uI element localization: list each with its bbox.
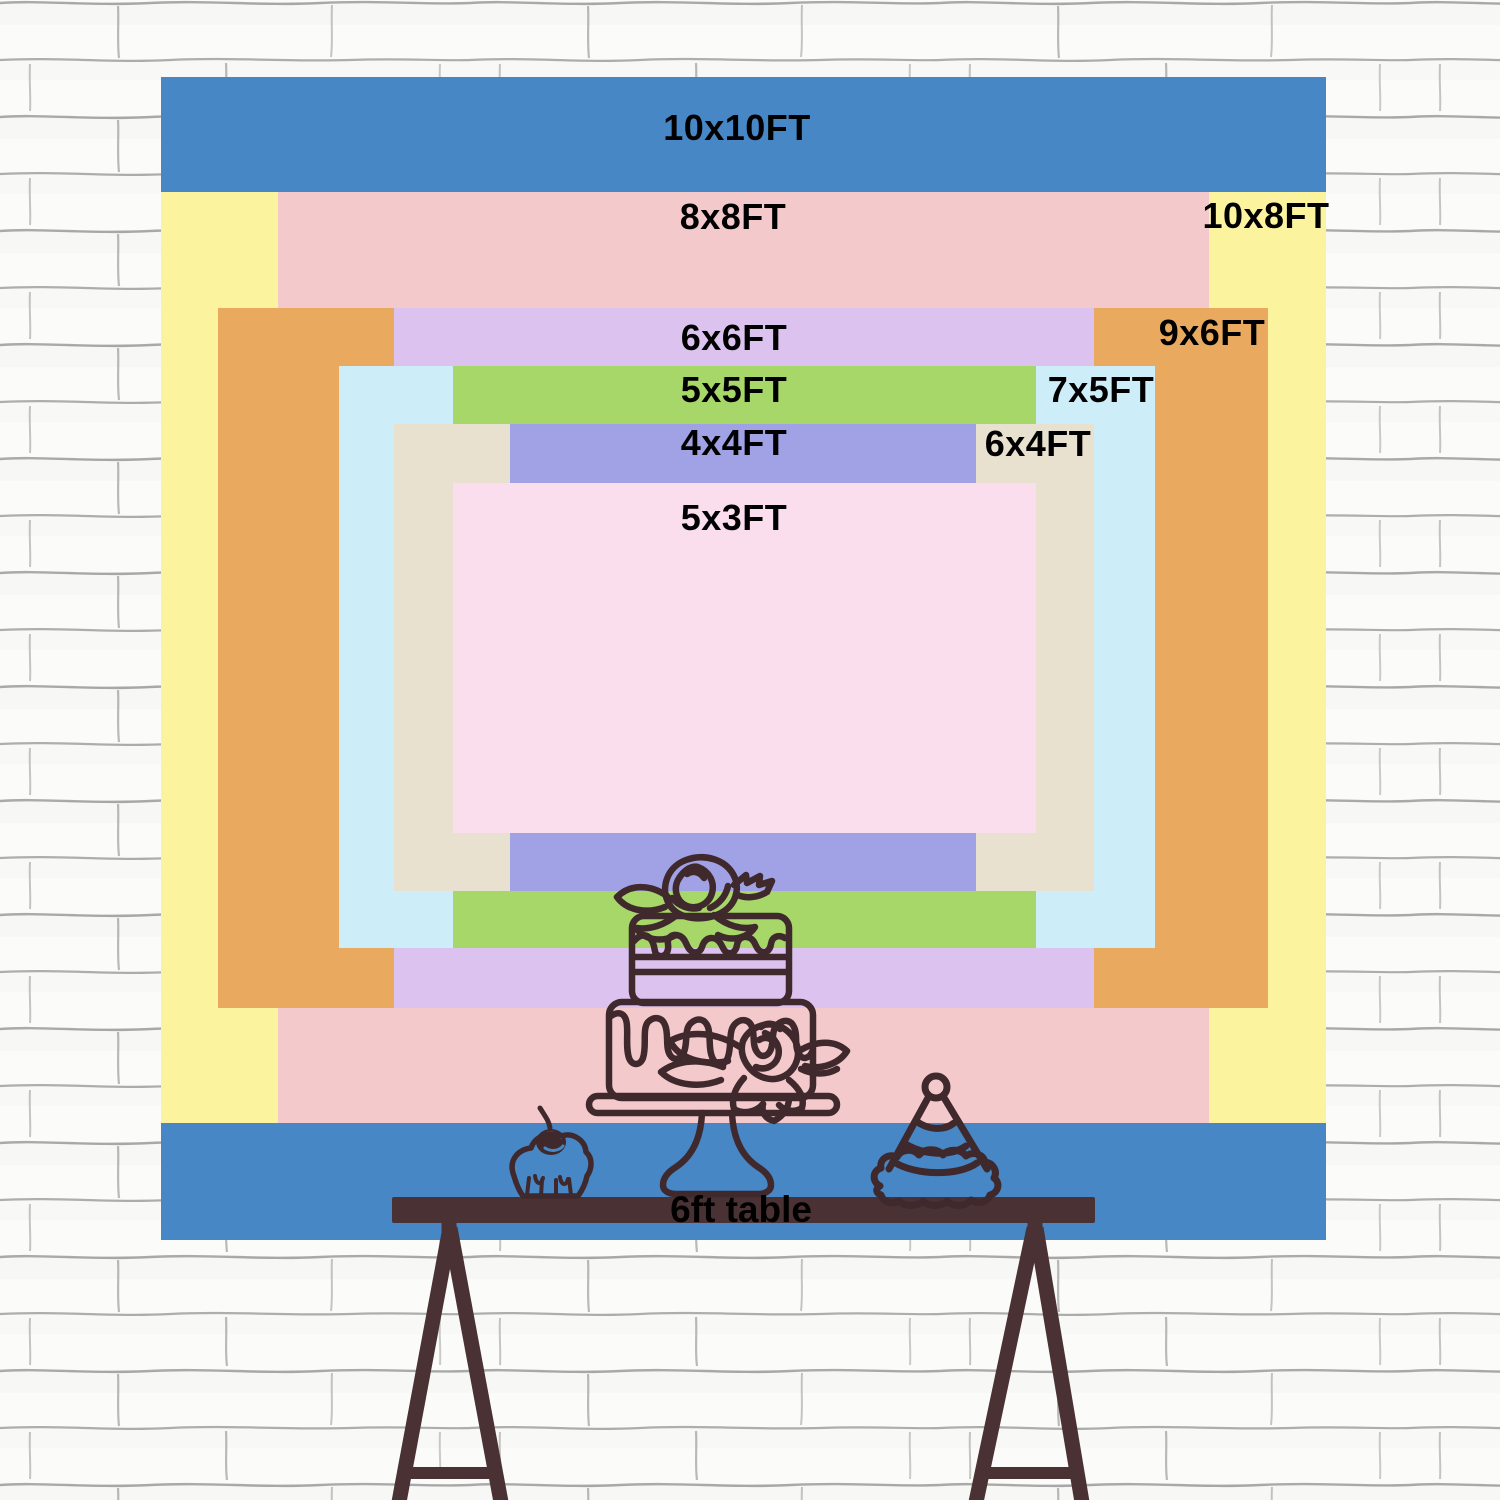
size-label-6x6: 6x6FT: [681, 317, 788, 359]
size-label-4x4: 4x4FT: [681, 422, 788, 464]
size-label-8x8: 8x8FT: [680, 196, 787, 238]
backdrop-size-chart: 10x10FT 10x8FT 8x8FT 9x6FT 6x6FT 7x5FT 5…: [0, 0, 1500, 1500]
size-label-5x5: 5x5FT: [681, 369, 788, 411]
size-label-6x4: 6x4FT: [985, 423, 1092, 465]
size-label-9x6: 9x6FT: [1159, 312, 1266, 354]
size-label-10x8: 10x8FT: [1202, 195, 1329, 237]
table-length-label: 6ft table: [670, 1189, 812, 1231]
size-label-10x10: 10x10FT: [663, 107, 811, 149]
size-label-7x5: 7x5FT: [1048, 369, 1155, 411]
size-label-5x3: 5x3FT: [681, 497, 788, 539]
